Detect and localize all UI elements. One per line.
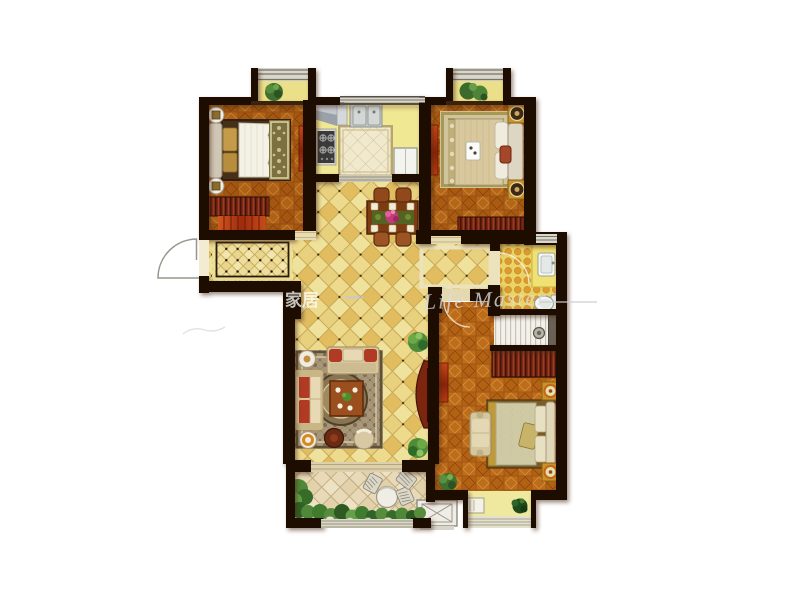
svg-text:Life Master: Life Master — [422, 285, 548, 314]
svg-text:家居: 家居 — [285, 290, 319, 310]
